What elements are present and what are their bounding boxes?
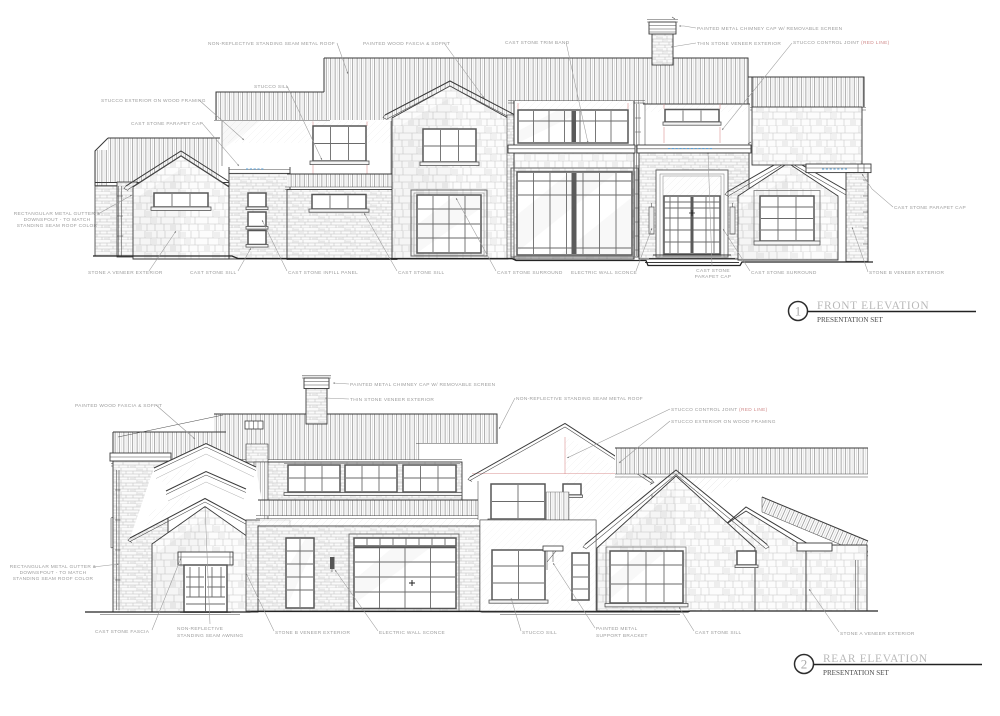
svg-text:CAST STONE TRIM BAND: CAST STONE TRIM BAND bbox=[505, 40, 570, 46]
svg-text:CAST STONE SILL: CAST STONE SILL bbox=[695, 630, 741, 636]
svg-text:CAST STONE SURROUND: CAST STONE SURROUND bbox=[751, 270, 817, 276]
svg-text:STUCCO CONTROL JOINT (RED LINE: STUCCO CONTROL JOINT (RED LINE) bbox=[671, 407, 768, 413]
svg-text:CAST STONE INFILL PANEL: CAST STONE INFILL PANEL bbox=[288, 270, 358, 276]
svg-text:CAST STONE SILL: CAST STONE SILL bbox=[190, 270, 236, 276]
svg-text:RECTANGULAR METAL GUTTER &: RECTANGULAR METAL GUTTER & bbox=[10, 564, 97, 570]
svg-text:STONE B VENEER EXTERIOR: STONE B VENEER EXTERIOR bbox=[869, 270, 944, 276]
svg-text:STUCCO EXTERIOR ON WOOD FRAMIN: STUCCO EXTERIOR ON WOOD FRAMING bbox=[671, 419, 776, 425]
svg-text:PAINTED METAL CHIMNEY CAP W/ R: PAINTED METAL CHIMNEY CAP W/ REMOVABLE S… bbox=[350, 382, 496, 388]
svg-text:DOWNSPOUT - TO MATCH: DOWNSPOUT - TO MATCH bbox=[20, 570, 87, 576]
svg-text:DOWNSPOUT - TO MATCH: DOWNSPOUT - TO MATCH bbox=[24, 217, 91, 223]
svg-text:PRESENTATION SET: PRESENTATION SET bbox=[823, 669, 890, 677]
svg-text:STUCCO SILL: STUCCO SILL bbox=[522, 630, 557, 636]
svg-text:CAST STONE: CAST STONE bbox=[696, 268, 730, 274]
svg-text:PAINTED WOOD FASCIA & SOFFIT: PAINTED WOOD FASCIA & SOFFIT bbox=[363, 41, 450, 47]
svg-text:PAINTED METAL CHIMNEY CAP W/ R: PAINTED METAL CHIMNEY CAP W/ REMOVABLE S… bbox=[697, 26, 843, 32]
svg-text:PARAPET CAP: PARAPET CAP bbox=[695, 274, 732, 280]
svg-text:CAST STONE SILL: CAST STONE SILL bbox=[398, 270, 444, 276]
svg-text:STANDING SEAM AWNING: STANDING SEAM AWNING bbox=[177, 633, 243, 639]
svg-text:PRESENTATION SET: PRESENTATION SET bbox=[817, 316, 884, 324]
svg-text:RECTANGULAR METAL GUTTER &: RECTANGULAR METAL GUTTER & bbox=[14, 211, 101, 217]
svg-text:FRONT ELEVATION: FRONT ELEVATION bbox=[817, 300, 929, 312]
svg-text:2: 2 bbox=[801, 657, 808, 672]
svg-text:STANDING SEAM ROOF COLOR: STANDING SEAM ROOF COLOR bbox=[17, 223, 98, 229]
svg-text:STUCCO CONTROL JOINT (RED LINE: STUCCO CONTROL JOINT (RED LINE) bbox=[793, 40, 890, 46]
svg-text:STUCCO SILL: STUCCO SILL bbox=[254, 84, 289, 90]
svg-text:STUCCO EXTERIOR ON WOOD FRAMIN: STUCCO EXTERIOR ON WOOD FRAMING bbox=[101, 98, 206, 104]
svg-text:PAINTED METAL: PAINTED METAL bbox=[596, 626, 638, 632]
svg-text:STONE A VENEER EXTERIOR: STONE A VENEER EXTERIOR bbox=[840, 631, 915, 637]
svg-text:REAR ELEVATION: REAR ELEVATION bbox=[823, 653, 928, 665]
svg-text:CAST STONE SURROUND: CAST STONE SURROUND bbox=[497, 270, 563, 276]
svg-text:NON-REFLECTIVE: NON-REFLECTIVE bbox=[177, 626, 223, 632]
svg-text:ELECTRIC WALL SCONCE: ELECTRIC WALL SCONCE bbox=[379, 630, 445, 636]
svg-text:NON-REFLECTIVE STANDING SEAM M: NON-REFLECTIVE STANDING SEAM METAL ROOF bbox=[208, 41, 335, 47]
svg-text:STANDING SEAM ROOF COLOR: STANDING SEAM ROOF COLOR bbox=[13, 576, 94, 582]
svg-text:1: 1 bbox=[795, 304, 802, 319]
svg-text:CAST STONE PARAPET CAP: CAST STONE PARAPET CAP bbox=[894, 205, 966, 211]
svg-text:SUPPORT BRACKET: SUPPORT BRACKET bbox=[596, 633, 648, 639]
svg-text:CAST STONE FASCIA: CAST STONE FASCIA bbox=[95, 629, 150, 635]
svg-text:PAINTED WOOD FASCIA & SOFFIT: PAINTED WOOD FASCIA & SOFFIT bbox=[75, 403, 162, 409]
svg-text:NON-REFLECTIVE STANDING SEAM M: NON-REFLECTIVE STANDING SEAM METAL ROOF bbox=[516, 396, 643, 402]
svg-text:STONE A VENEER EXTERIOR: STONE A VENEER EXTERIOR bbox=[88, 270, 163, 276]
svg-text:ELECTRIC WALL SCONCE: ELECTRIC WALL SCONCE bbox=[571, 270, 637, 276]
svg-text:CAST STONE PARAPET CAP: CAST STONE PARAPET CAP bbox=[131, 121, 203, 127]
svg-text:THIN STONE VENEER EXTERIOR: THIN STONE VENEER EXTERIOR bbox=[350, 397, 434, 403]
svg-text:THIN STONE VENEER EXTERIOR: THIN STONE VENEER EXTERIOR bbox=[697, 41, 781, 47]
svg-text:STONE B VENEER EXTERIOR: STONE B VENEER EXTERIOR bbox=[275, 630, 350, 636]
